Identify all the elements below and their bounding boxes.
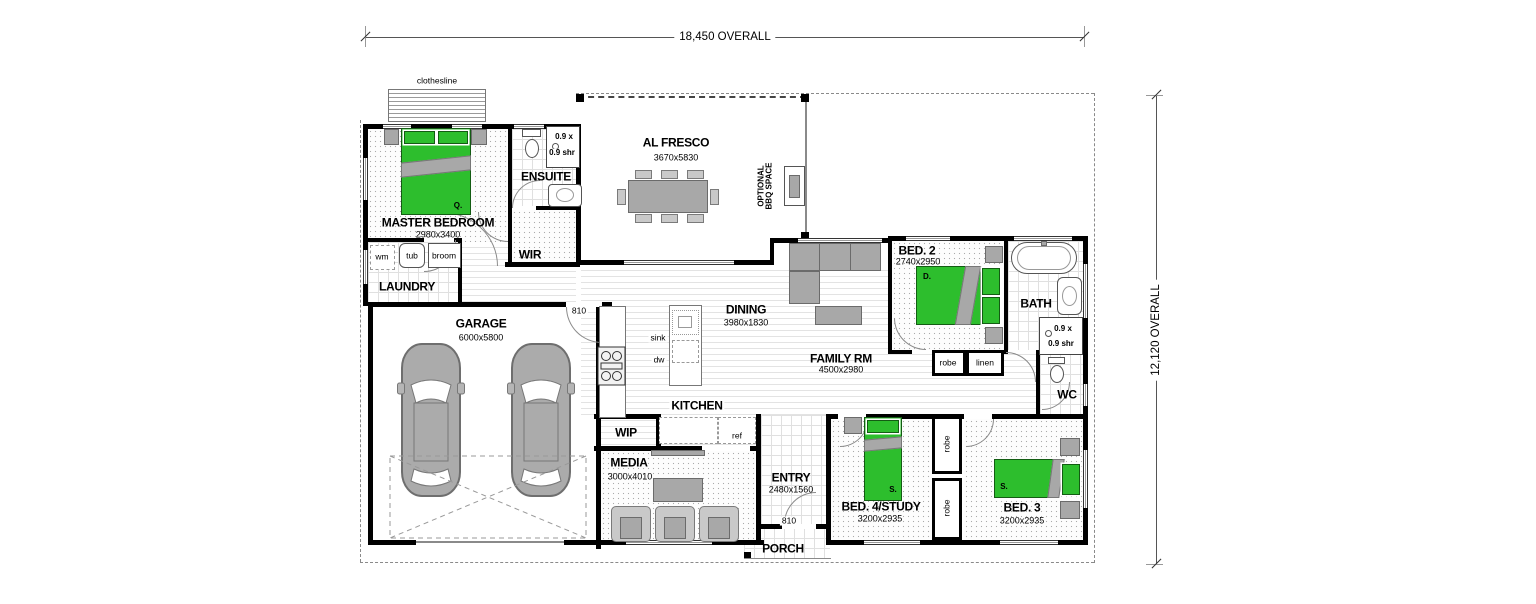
wall	[508, 206, 512, 266]
dw-label: dw	[652, 356, 667, 365]
pillow-icon	[867, 420, 899, 433]
sliding-door-window	[624, 260, 734, 265]
alfresco-side-line	[805, 96, 807, 238]
room-size-dining: 3980x1830	[724, 318, 769, 327]
clothesline-icon	[388, 89, 486, 122]
room-label-alfresco: AL FRESCO	[643, 137, 709, 150]
sofa-icon	[789, 271, 820, 304]
window	[1083, 264, 1088, 318]
bed-label-single: S.	[889, 486, 897, 494]
kitchen-bench	[659, 417, 718, 444]
ref-label: ref	[730, 432, 744, 441]
door-width-label: 810	[570, 307, 588, 316]
chair-icon	[635, 214, 652, 223]
shower-size-label: 0.9 shr	[549, 149, 575, 157]
shower-size-label: 0.9 shr	[1048, 340, 1074, 348]
roofline-top	[576, 93, 1094, 94]
robe-label: robe	[943, 499, 952, 516]
linen-label: linen	[976, 359, 994, 368]
porch-edge-line	[744, 558, 831, 559]
sofa-seam	[850, 244, 851, 270]
wall	[826, 414, 831, 545]
room-size-bed2: 2740x2950	[896, 257, 941, 266]
recliner-icon	[611, 506, 651, 542]
wall	[508, 124, 512, 210]
shower-size-label: 0.9 x	[1054, 325, 1072, 333]
recliner-seat	[620, 517, 642, 539]
chair-icon	[661, 170, 678, 179]
toilet-icon	[1048, 357, 1065, 364]
door-opening	[702, 446, 750, 451]
window	[864, 540, 920, 545]
room-label-ensuite: ENSUITE	[521, 171, 571, 184]
bedside-table-icon	[1060, 438, 1080, 456]
room-label-master-bedroom: MASTER BEDROOM	[382, 217, 494, 230]
bbq-grill-icon	[789, 175, 800, 198]
shower-size-label: 0.9 x	[555, 133, 573, 141]
recliner-icon	[699, 506, 739, 542]
cooktop-icon	[597, 346, 626, 386]
sofa-seam	[819, 244, 820, 270]
broom-label: broom	[432, 252, 456, 261]
room-size-family: 4500x2980	[819, 365, 864, 374]
window	[1000, 540, 1058, 545]
robe-label: robe	[939, 359, 956, 368]
wall	[576, 260, 624, 265]
pillow-icon	[982, 268, 1000, 295]
bed-icon-bed3	[994, 459, 1056, 498]
coffee-table-icon	[815, 306, 862, 325]
dishwasher-icon	[672, 340, 699, 363]
window	[363, 158, 368, 200]
room-label-bed3: BED. 3	[1004, 502, 1041, 515]
room-label-garage: GARAGE	[456, 318, 507, 331]
toilet-icon	[525, 139, 539, 158]
tap-icon	[1041, 241, 1047, 246]
basin-bowl-icon	[556, 188, 574, 202]
dimension-label-width: 18,450 OVERALL	[674, 31, 775, 43]
room-size-bed3: 3200x2935	[1000, 516, 1045, 525]
post-icon	[576, 94, 584, 102]
room-label-dining: DINING	[726, 304, 766, 317]
garage-setdown-icon	[389, 455, 587, 539]
recliner-seat	[708, 517, 730, 539]
dimension-label-height: 12,120 OVERALL	[1150, 279, 1162, 380]
pillow-icon	[404, 131, 435, 144]
clothesline-label: clothesline	[417, 77, 457, 86]
wall	[1036, 350, 1040, 418]
roofline-right	[1094, 93, 1095, 563]
toilet-icon	[1050, 365, 1064, 383]
robe-label: robe	[943, 435, 952, 452]
room-size-bed4: 3200x2935	[858, 514, 903, 523]
recliner-seat	[664, 517, 686, 539]
alfresco-open-edge	[578, 96, 806, 98]
wall	[888, 350, 912, 354]
room-size-master-bedroom: 2980x3400	[416, 230, 461, 239]
tub-label: tub	[406, 252, 418, 261]
window	[363, 250, 368, 284]
wall	[734, 260, 774, 265]
room-label-bath: BATH	[1020, 298, 1051, 311]
door-width-label: 810	[780, 517, 798, 526]
room-label-entry: ENTRY	[772, 472, 811, 485]
sink-bowl-icon	[678, 316, 692, 328]
room-label-laundry: LAUNDRY	[379, 281, 435, 294]
chair-icon	[661, 214, 678, 223]
chair-icon	[617, 189, 626, 205]
window	[1083, 384, 1088, 406]
chair-icon	[710, 189, 719, 205]
garage-door-line	[416, 541, 564, 543]
room-size-alfresco: 3670x5830	[654, 153, 699, 162]
chair-icon	[687, 214, 704, 223]
roofline-left	[360, 120, 361, 562]
floor-plan-canvas: clothesline MASTER BEDROOM 2980x3400 Q. …	[0, 0, 1536, 604]
shower-drain-icon	[1045, 330, 1052, 337]
pillow-icon	[1062, 464, 1080, 495]
wall	[368, 302, 373, 545]
bedside-table-icon	[985, 246, 1003, 263]
wall	[368, 540, 416, 545]
sink-label: sink	[648, 334, 667, 343]
outdoor-table-icon	[628, 180, 708, 213]
window	[906, 236, 950, 241]
optional-bbq-line2: BBQ SPACE	[766, 163, 774, 210]
pillow-icon	[438, 131, 468, 144]
room-label-porch: PORCH	[762, 543, 804, 556]
bed-label-double: D.	[923, 273, 931, 281]
wall	[505, 262, 580, 267]
pillow-icon	[982, 297, 1000, 324]
roofline-bottom	[360, 562, 1094, 563]
room-label-wir: WIR	[519, 249, 541, 262]
sofa-icon	[789, 243, 881, 271]
optional-bbq-label: OPTIONAL BBQ SPACE	[758, 163, 775, 210]
basin-bowl-icon	[1062, 286, 1077, 306]
bedside-table-icon	[985, 327, 1003, 344]
window	[1083, 450, 1088, 508]
bed-label-single: S.	[1000, 483, 1008, 491]
chair-icon	[687, 170, 704, 179]
bedside-table-icon	[844, 417, 862, 434]
bedside-table-icon	[384, 129, 399, 145]
room-size-media: 3000x4010	[608, 472, 653, 481]
wall	[888, 236, 892, 354]
wall	[1004, 240, 1008, 354]
tv-screen-icon	[651, 450, 705, 456]
recliner-icon	[655, 506, 695, 542]
room-size-entry: 2480x1560	[769, 485, 814, 494]
bedside-table-icon	[1060, 501, 1080, 519]
wm-label: wm	[375, 253, 388, 262]
room-label-kitchen: KITCHEN	[669, 400, 724, 413]
bedside-table-icon	[471, 129, 487, 145]
room-label-wip: WIP	[615, 427, 637, 440]
chair-icon	[635, 170, 652, 179]
room-size-garage: 6000x5800	[459, 333, 504, 342]
toilet-icon	[522, 129, 541, 137]
bed-label-queen: Q.	[454, 202, 462, 210]
post-icon	[801, 94, 809, 102]
bathtub-inner	[1017, 246, 1071, 270]
room-label-bed4: BED. 4/STUDY	[841, 501, 920, 514]
media-table-icon	[653, 478, 703, 502]
room-label-wc: WC	[1057, 389, 1076, 402]
room-label-media: MEDIA	[610, 457, 647, 470]
